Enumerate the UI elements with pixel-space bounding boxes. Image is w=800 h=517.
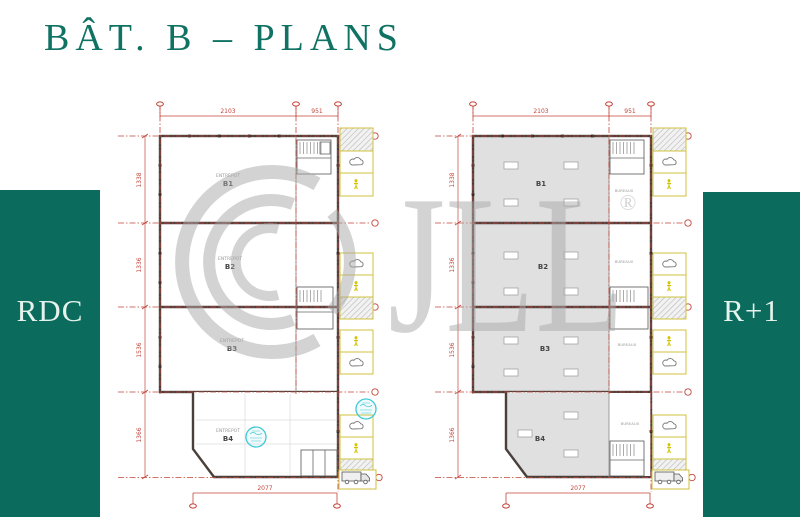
jll-watermark-letters: JLL (388, 155, 625, 374)
approval-stamp-icon (356, 399, 376, 419)
approval-stamp-icon (246, 427, 266, 447)
truck-icon (342, 472, 370, 484)
survey-marker-icon (334, 493, 341, 508)
r1-dim-top-2: 951 (624, 108, 636, 115)
rdc-b4-sub: ENTREPOT (216, 428, 240, 434)
survey-marker-icon (190, 493, 197, 508)
r1-dim-top-1: 2103 (533, 108, 548, 115)
rdc-dim-left-3: 1536 (136, 342, 143, 357)
rdc-dim-bottom: 2077 (257, 485, 272, 492)
rdc-dim-left-2: 1336 (136, 257, 143, 272)
survey-marker-icon (648, 102, 655, 117)
r1-b4-label: B4 (535, 435, 545, 443)
rdc-dim-left: 1338 1336 1536 1366 (136, 134, 148, 479)
r1-dim-top: 2103 951 (470, 102, 655, 117)
slide: BÂT. B – PLANS RDC R+1 (0, 0, 800, 517)
survey-marker-icon (503, 493, 510, 508)
r1-dim-left-4: 1366 (449, 427, 456, 442)
rdc-dim-bottom: 2077 (190, 485, 341, 508)
survey-marker-icon (293, 102, 300, 117)
r1-dim-bottom: 2077 (570, 485, 585, 492)
rdc-annotation-boxes (339, 128, 376, 489)
rdc-dim-top: 2103 951 (157, 102, 342, 117)
floor-plans-canvas: 2103 951 1338 1336 1536 1366 (0, 0, 800, 517)
r1-dim-bottom: 2077 (503, 485, 654, 508)
rdc-dim-top-1: 2103 (220, 108, 235, 115)
survey-marker-icon (335, 102, 342, 117)
rdc-dim-top-2: 951 (311, 108, 323, 115)
survey-marker-icon (606, 102, 613, 117)
survey-marker-icon (470, 102, 477, 117)
survey-marker-icon (157, 102, 164, 117)
rdc-b4-label: B4 (223, 435, 233, 443)
truck-icon (655, 472, 683, 484)
survey-marker-icon (647, 493, 654, 508)
rdc-dim-left-1: 1338 (136, 172, 143, 187)
rdc-dim-left-4: 1366 (136, 427, 143, 442)
registered-trademark-icon: ® (620, 190, 637, 215)
r1-strip-label-4: BUREAUX (621, 421, 640, 426)
r1-annotation-boxes (652, 128, 689, 489)
